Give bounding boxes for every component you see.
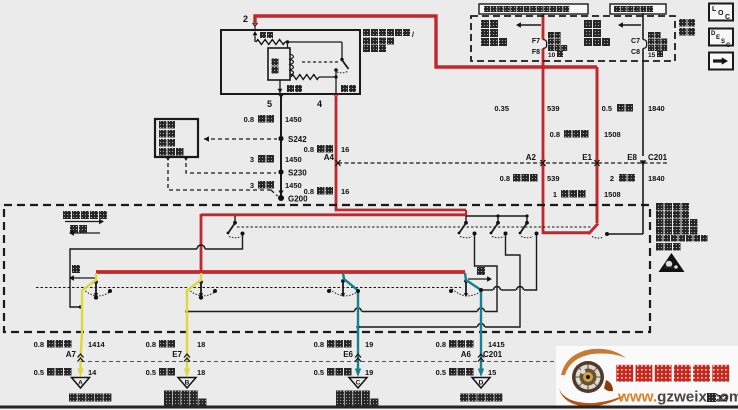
svg-text:1415: 1415 xyxy=(488,340,505,349)
svg-text:0.8: 0.8 xyxy=(304,187,314,196)
svg-text:S242: S242 xyxy=(288,135,307,144)
svg-text:0.8: 0.8 xyxy=(436,340,446,349)
svg-text:18: 18 xyxy=(197,340,205,349)
svg-text:0.8: 0.8 xyxy=(314,340,324,349)
svg-text:1508: 1508 xyxy=(604,130,621,139)
svg-text:1450: 1450 xyxy=(285,115,302,124)
svg-text:19: 19 xyxy=(365,368,373,377)
svg-text:0.5: 0.5 xyxy=(436,368,446,377)
svg-text:E1: E1 xyxy=(582,153,592,162)
svg-text:S: S xyxy=(721,39,725,45)
svg-text:C: C xyxy=(725,14,730,21)
svg-text:15: 15 xyxy=(648,52,656,59)
svg-text:1840: 1840 xyxy=(648,104,665,113)
svg-text:S230: S230 xyxy=(288,169,307,178)
svg-text:1840: 1840 xyxy=(648,174,665,183)
svg-text:F8: F8 xyxy=(532,49,540,56)
svg-text:/: / xyxy=(412,32,414,39)
svg-text:15: 15 xyxy=(488,368,496,377)
svg-text:A2: A2 xyxy=(526,153,537,162)
svg-text:E7: E7 xyxy=(172,350,182,359)
svg-text:0.8: 0.8 xyxy=(34,340,44,349)
svg-text:C7: C7 xyxy=(631,38,640,45)
svg-text:0.8: 0.8 xyxy=(500,174,510,183)
svg-text:0.8: 0.8 xyxy=(244,115,254,124)
svg-text:D: D xyxy=(479,380,484,387)
svg-text:B: B xyxy=(185,380,190,387)
svg-text:A7: A7 xyxy=(66,350,77,359)
svg-text:0.5: 0.5 xyxy=(34,368,44,377)
svg-text:18: 18 xyxy=(197,368,205,377)
svg-text:16: 16 xyxy=(341,187,349,196)
svg-text:0.8: 0.8 xyxy=(304,145,314,154)
svg-text:L: L xyxy=(712,6,717,13)
svg-text:O: O xyxy=(718,10,724,17)
svg-text:1508: 1508 xyxy=(604,190,621,199)
svg-text:12: 12 xyxy=(717,394,728,405)
svg-text:1450: 1450 xyxy=(285,155,302,164)
svg-text:A4: A4 xyxy=(324,153,335,162)
svg-text:0.5: 0.5 xyxy=(602,104,612,113)
svg-text:F7: F7 xyxy=(532,38,540,45)
svg-text:4: 4 xyxy=(317,99,322,109)
svg-text:0.8: 0.8 xyxy=(146,340,156,349)
svg-text:C: C xyxy=(726,43,731,49)
svg-text:539: 539 xyxy=(547,174,560,183)
svg-text:1450: 1450 xyxy=(285,181,302,190)
svg-text:A6: A6 xyxy=(461,350,472,359)
svg-text:16: 16 xyxy=(341,145,349,154)
svg-text:1: 1 xyxy=(553,190,557,199)
svg-text:0.35: 0.35 xyxy=(494,104,509,113)
svg-text:A: A xyxy=(78,380,83,387)
svg-text:E: E xyxy=(716,35,720,41)
svg-text:0.5: 0.5 xyxy=(146,368,156,377)
svg-text:E6: E6 xyxy=(343,350,353,359)
svg-text:E8: E8 xyxy=(627,153,637,162)
svg-text:0.5: 0.5 xyxy=(314,368,324,377)
svg-text:19: 19 xyxy=(365,340,373,349)
svg-text:2: 2 xyxy=(243,14,248,24)
svg-text:14: 14 xyxy=(88,368,97,377)
svg-text:10: 10 xyxy=(548,52,556,59)
svg-text:3: 3 xyxy=(250,155,254,164)
svg-text:3: 3 xyxy=(250,181,254,190)
svg-text:5: 5 xyxy=(267,99,272,109)
svg-text:C201: C201 xyxy=(483,350,503,359)
svg-text:C: C xyxy=(356,380,361,387)
svg-text:1414: 1414 xyxy=(88,340,106,349)
svg-text:0.8: 0.8 xyxy=(550,130,560,139)
svg-text:C201: C201 xyxy=(648,153,668,162)
svg-text:2: 2 xyxy=(610,174,614,183)
svg-text:C8: C8 xyxy=(631,49,640,56)
svg-text:539: 539 xyxy=(547,104,560,113)
